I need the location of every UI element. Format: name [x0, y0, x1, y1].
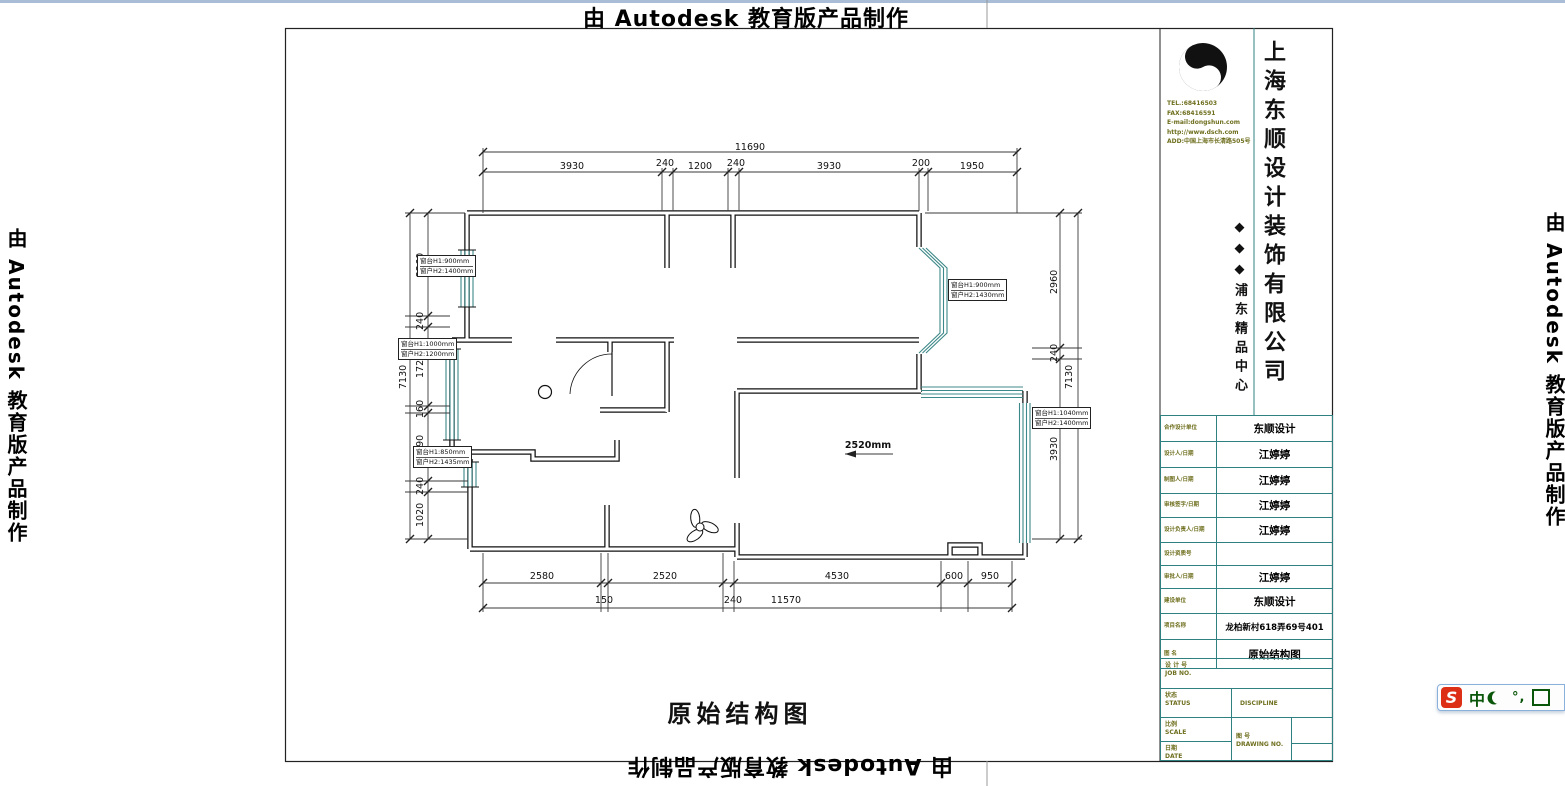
- window-size-label: 窗台H1:900mm窗户H2:1430mm: [948, 279, 1007, 301]
- row-label: 建设单位: [1161, 589, 1217, 613]
- dimension-label: 240: [415, 477, 426, 495]
- fan-symbol: [685, 509, 720, 544]
- row-value: 江婷婷: [1217, 447, 1332, 462]
- dimension-label: 150: [595, 595, 613, 606]
- company-subbrand-vertical: ◆◆◆浦东精品中心: [1230, 220, 1249, 400]
- dimension-lines: [405, 148, 1082, 612]
- dimension-label: 240: [727, 158, 745, 169]
- date-label: 日期: [1165, 745, 1177, 752]
- walls: [452, 213, 1025, 557]
- company-logo: [1170, 34, 1236, 100]
- row-value: 江婷婷: [1217, 523, 1332, 538]
- row-label: 审批人/日期: [1161, 566, 1217, 588]
- title-block-bottom: 设 计 号 JOB NO. 状态 STATUS DISCIPLINE 比例 SC…: [1160, 658, 1333, 761]
- table-row: 建设单位东顺设计: [1160, 589, 1333, 614]
- dimension-label: 240: [656, 158, 674, 169]
- table-row: 合作设计单位东顺设计: [1160, 416, 1333, 442]
- dimension-label: 4530: [825, 571, 849, 582]
- table-row: 审核签字/日期江婷婷: [1160, 494, 1333, 518]
- row-label: 项目名称: [1161, 614, 1217, 639]
- row-label: 制图人/日期: [1161, 468, 1217, 493]
- table-row: 设计资质号: [1160, 543, 1333, 566]
- status-en: STATUS: [1165, 700, 1190, 707]
- window-size-label: 窗台H1:900mm窗户H2:1400mm: [417, 255, 476, 277]
- table-row: 项目名称龙柏新村618弄69号401: [1160, 614, 1333, 640]
- watermark-right: 由 Autodesk 教育版产品制作: [1540, 212, 1565, 572]
- dimension-label: 200: [912, 158, 930, 169]
- watermark-left: 由 Autodesk 教育版产品制作: [2, 228, 31, 588]
- dimension-label: 3930: [1049, 437, 1060, 461]
- dimension-label: 240: [1049, 344, 1060, 362]
- table-row: 设计负责人/日期江婷婷: [1160, 518, 1333, 543]
- dimension-label: 240: [415, 312, 426, 330]
- window-size-label: 窗台H1:1040mm窗户H2:1400mm: [1032, 407, 1091, 429]
- ime-toolbar[interactable]: S 中 °,: [1437, 684, 1565, 711]
- row-value: 东顺设计: [1217, 421, 1332, 436]
- sogou-logo-icon[interactable]: S: [1441, 687, 1462, 708]
- window-size-label: 窗台H1:850mm窗户H2:1435mm: [413, 446, 472, 468]
- row-label: 设计资质号: [1161, 543, 1217, 565]
- watermark-top: 由 Autodesk 教育版产品制作: [583, 1, 909, 33]
- dimension-label: 1200: [688, 161, 712, 172]
- row-value: 东顺设计: [1217, 594, 1332, 609]
- contact-line: http://www.dsch.com: [1167, 128, 1259, 138]
- contact-line: E-mail:dongshun.com: [1167, 118, 1259, 128]
- clipped-ime-icon[interactable]: [1532, 689, 1550, 706]
- cad-plot-page: 由 Autodesk 教育版产品制作 由 Autodesk 教育版产品制作 由 …: [0, 0, 1565, 786]
- dimension-label: 600: [945, 571, 963, 582]
- dimension-label: 2580: [530, 571, 554, 582]
- punctuation-icon[interactable]: °,: [1512, 690, 1525, 705]
- dimension-label: 11690: [735, 142, 765, 153]
- dimension-ticks: [406, 148, 1082, 612]
- dimension-label: 2520: [653, 571, 677, 582]
- dimension-label: 3930: [560, 161, 584, 172]
- row-value: 江婷婷: [1217, 473, 1332, 488]
- row-label: 设计人/日期: [1161, 442, 1217, 467]
- dimension-label: 950: [981, 571, 999, 582]
- window-size-label: 窗台H1:1000mm窗户H2:1200mm: [398, 338, 457, 360]
- dimension-label: 1950: [960, 161, 984, 172]
- chinese-mode-icon[interactable]: 中: [1469, 686, 1485, 710]
- dimension-label: 160: [415, 400, 426, 418]
- contact-line: TEL.:68416503: [1167, 99, 1259, 109]
- window-lines: [446, 248, 1030, 543]
- door-swing: [570, 352, 612, 396]
- status-label: 状态: [1165, 692, 1177, 699]
- table-row: 设计人/日期江婷婷: [1160, 442, 1333, 468]
- scale-label: 比例: [1165, 721, 1177, 728]
- dimension-label: 1020: [415, 503, 426, 527]
- discipline-en: DISCIPLINE: [1240, 700, 1278, 707]
- column-circle: [539, 386, 552, 399]
- row-value: 江婷婷: [1217, 570, 1332, 585]
- title-block-table: 合作设计单位东顺设计设计人/日期江婷婷制图人/日期江婷婷审核签字/日期江婷婷设计…: [1160, 415, 1333, 669]
- dimension-label: 240: [724, 595, 742, 606]
- dimension-label: 7130: [1064, 365, 1075, 389]
- dimension-label: 11570: [771, 595, 801, 606]
- job-no-label: 设 计 号: [1165, 662, 1187, 669]
- row-label: 合作设计单位: [1161, 416, 1217, 441]
- job-no-en: JOB NO.: [1165, 670, 1191, 677]
- row-label: 设计负责人/日期: [1161, 518, 1217, 542]
- company-name-vertical: 上海东顺设计装饰有限公司: [1256, 40, 1288, 400]
- leader-arrow: [845, 451, 856, 458]
- contact-line: ADD:中国上海市长清路505号: [1167, 137, 1259, 147]
- dimension-label: 3930: [817, 161, 841, 172]
- table-row: 制图人/日期江婷婷: [1160, 468, 1333, 494]
- watermark-bottom: 由 Autodesk 教育版产品制作: [600, 752, 980, 784]
- fullwidth-moon-icon[interactable]: [1490, 689, 1507, 706]
- drawing-no-label: 图 号: [1236, 733, 1291, 741]
- company-contact-info: TEL.:68416503FAX:68416591E-mail:dongshun…: [1167, 99, 1259, 147]
- dimension-label: 7130: [398, 365, 409, 389]
- row-value: 龙柏新村618弄69号401: [1217, 621, 1332, 633]
- drawing-title: 原始结构图: [640, 694, 840, 729]
- date-en: DATE: [1165, 753, 1182, 760]
- row-label: 审核签字/日期: [1161, 494, 1217, 517]
- room-annotation: 2520mm: [845, 440, 891, 451]
- row-value: 江婷婷: [1217, 498, 1332, 513]
- scale-en: SCALE: [1165, 729, 1186, 736]
- contact-line: FAX:68416591: [1167, 109, 1259, 119]
- dimension-label: 2960: [1049, 270, 1060, 294]
- drawing-no-en: DRAWING NO.: [1236, 741, 1291, 749]
- table-row: 审批人/日期江婷婷: [1160, 566, 1333, 589]
